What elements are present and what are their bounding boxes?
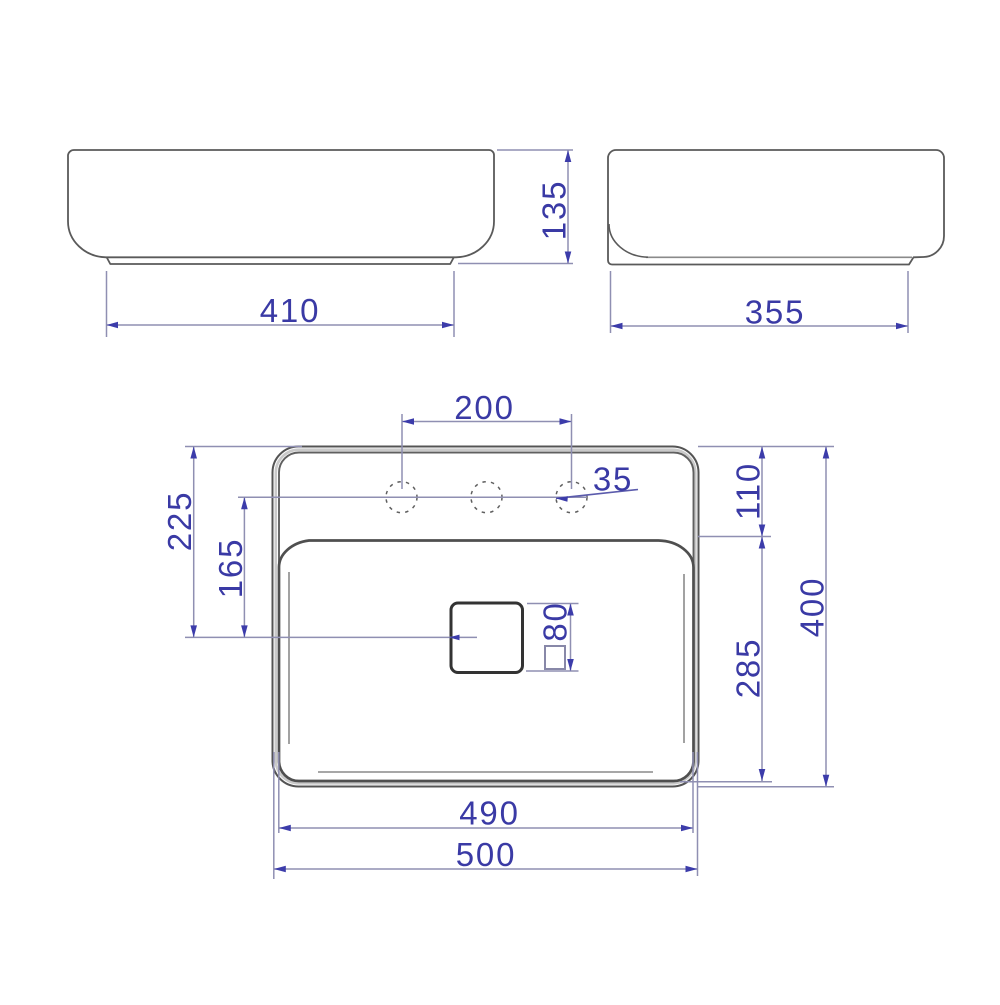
svg-text:225: 225 bbox=[161, 491, 198, 551]
svg-text:80: 80 bbox=[537, 601, 574, 641]
svg-text:110: 110 bbox=[730, 462, 767, 520]
svg-text:400: 400 bbox=[794, 577, 831, 637]
svg-text:410: 410 bbox=[260, 292, 320, 329]
svg-text:355: 355 bbox=[745, 294, 805, 331]
svg-text:200: 200 bbox=[454, 389, 514, 426]
svg-text:35: 35 bbox=[593, 461, 633, 498]
svg-text:490: 490 bbox=[459, 795, 519, 832]
svg-text:285: 285 bbox=[730, 638, 767, 698]
svg-text:135: 135 bbox=[536, 180, 573, 240]
svg-text:165: 165 bbox=[212, 538, 249, 598]
svg-text:500: 500 bbox=[456, 836, 516, 873]
